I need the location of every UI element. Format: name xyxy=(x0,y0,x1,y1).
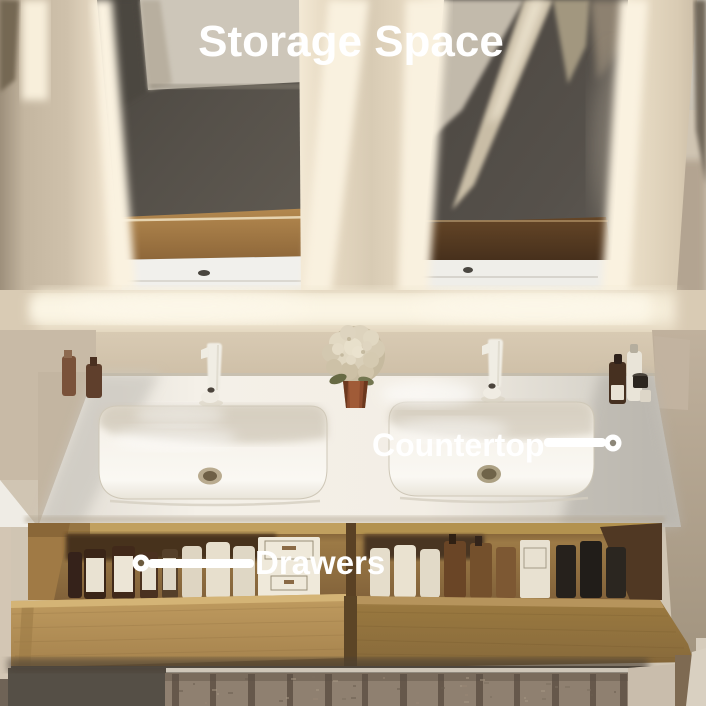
svg-text:Storage Space: Storage Space xyxy=(198,17,504,66)
svg-text:Drawers: Drawers xyxy=(255,544,385,581)
svg-text:Countertop: Countertop xyxy=(372,427,544,463)
